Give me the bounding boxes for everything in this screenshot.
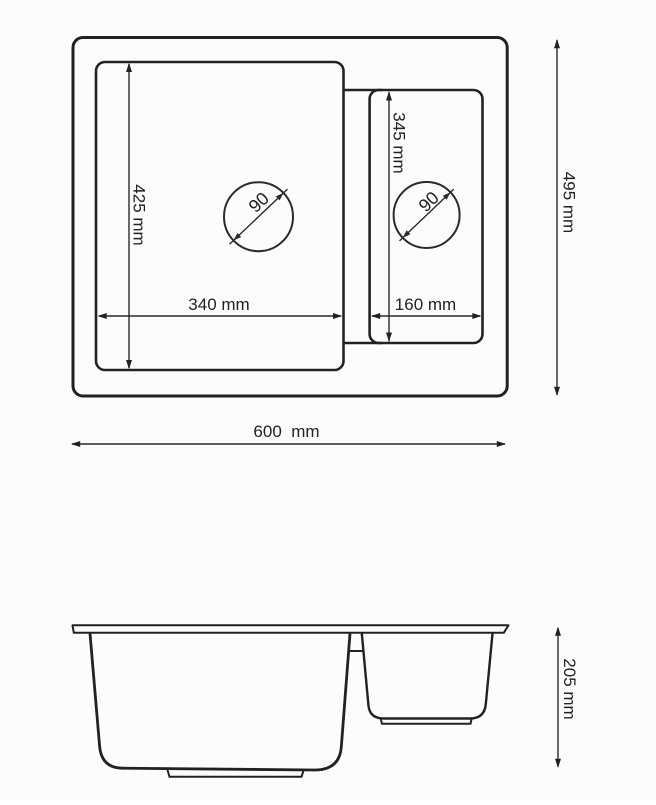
svg-text:425 mm: 425 mm (130, 184, 149, 245)
svg-text:495 mm: 495 mm (560, 172, 579, 233)
svg-text:160 mm: 160 mm (395, 295, 456, 314)
svg-text:205 mm: 205 mm (560, 658, 579, 719)
svg-text:340 mm: 340 mm (188, 295, 249, 314)
svg-text:600 mm: 600 mm (253, 422, 319, 441)
svg-text:345 mm: 345 mm (390, 112, 409, 173)
